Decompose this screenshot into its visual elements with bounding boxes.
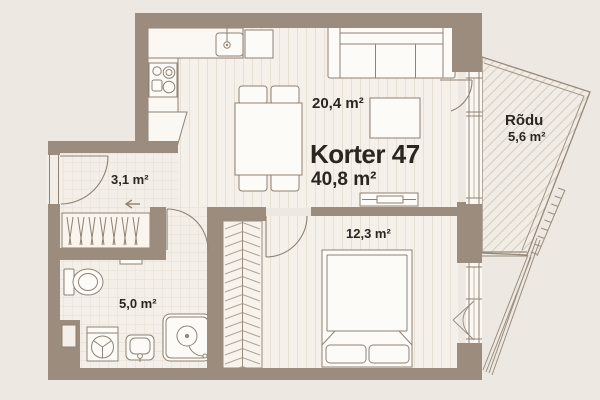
washing-machine-icon bbox=[87, 327, 118, 361]
balcony bbox=[482, 57, 590, 256]
living-room-area-label: 20,4 m² bbox=[312, 96, 364, 111]
bed bbox=[322, 250, 412, 367]
balcony-area-label: 5,6 m² bbox=[508, 130, 546, 143]
sofa bbox=[328, 26, 455, 78]
coat-rack bbox=[62, 213, 150, 248]
floor-plan-drawing bbox=[0, 0, 600, 400]
balcony-name-label: Rõdu bbox=[505, 113, 543, 128]
fridge bbox=[245, 30, 273, 58]
apartment-title: Korter 47 bbox=[310, 141, 420, 167]
tv-bench bbox=[360, 193, 418, 206]
toilet-icon bbox=[64, 269, 103, 295]
duct-shaft bbox=[62, 325, 76, 347]
bathroom-sink-icon bbox=[126, 335, 154, 362]
floor-plan: 20,4 m² Korter 47 40,8 m² 3,1 m² 5,0 m² … bbox=[0, 0, 600, 400]
shower-icon bbox=[163, 314, 211, 361]
bedroom-area-label: 12,3 m² bbox=[346, 227, 391, 240]
ottoman bbox=[370, 98, 420, 138]
hall-area-label: 3,1 m² bbox=[111, 173, 149, 186]
total-area-label: 40,8 m² bbox=[311, 170, 376, 189]
living-room-window bbox=[466, 72, 482, 204]
bathroom-area-label: 5,0 m² bbox=[119, 297, 157, 310]
stove-icon bbox=[149, 63, 177, 97]
wardrobe-zigzag bbox=[223, 221, 262, 368]
